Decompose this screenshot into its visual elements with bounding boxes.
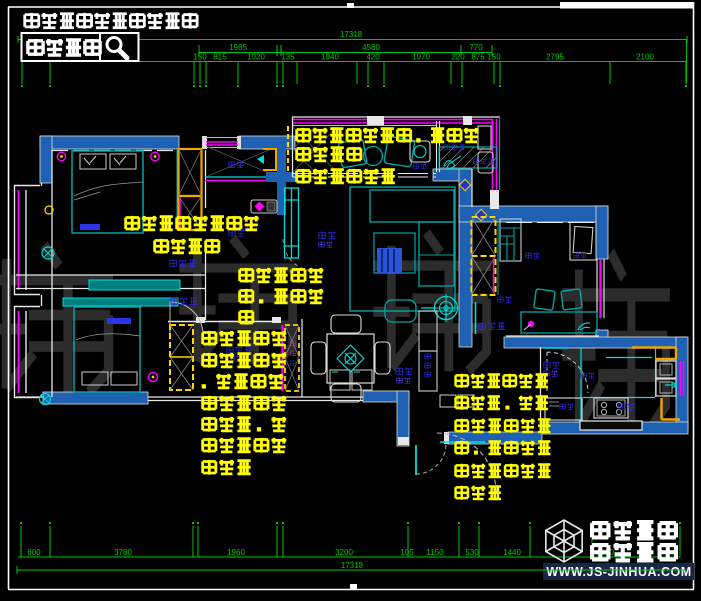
svg-text:815: 815 xyxy=(213,53,227,62)
svg-text:1440: 1440 xyxy=(503,548,521,557)
svg-text:530: 530 xyxy=(465,548,479,557)
svg-text:3780: 3780 xyxy=(114,548,132,557)
svg-text:1020: 1020 xyxy=(247,53,265,62)
svg-text:135: 135 xyxy=(281,53,295,62)
svg-text:150: 150 xyxy=(487,53,501,62)
svg-text:875: 875 xyxy=(471,53,485,62)
svg-text:17318: 17318 xyxy=(340,30,363,39)
svg-text:1985: 1985 xyxy=(229,43,247,52)
svg-text:3200: 3200 xyxy=(335,548,353,557)
svg-text:2100: 2100 xyxy=(636,53,654,62)
svg-text:1940: 1940 xyxy=(321,53,339,62)
svg-text:1970: 1970 xyxy=(412,53,430,62)
svg-text:420: 420 xyxy=(366,53,380,62)
svg-text:1150: 1150 xyxy=(426,548,444,557)
svg-text:17318: 17318 xyxy=(341,561,364,570)
svg-text:600: 600 xyxy=(27,548,41,557)
svg-text:2795: 2795 xyxy=(546,53,564,62)
svg-text:770: 770 xyxy=(469,43,483,52)
svg-text:WWW.JS-JINHUA.COM: WWW.JS-JINHUA.COM xyxy=(546,565,691,579)
svg-text:105: 105 xyxy=(400,548,414,557)
svg-text:1960: 1960 xyxy=(227,548,245,557)
svg-text:220: 220 xyxy=(451,53,465,62)
svg-text:4580: 4580 xyxy=(362,43,380,52)
svg-text:150: 150 xyxy=(193,53,207,62)
